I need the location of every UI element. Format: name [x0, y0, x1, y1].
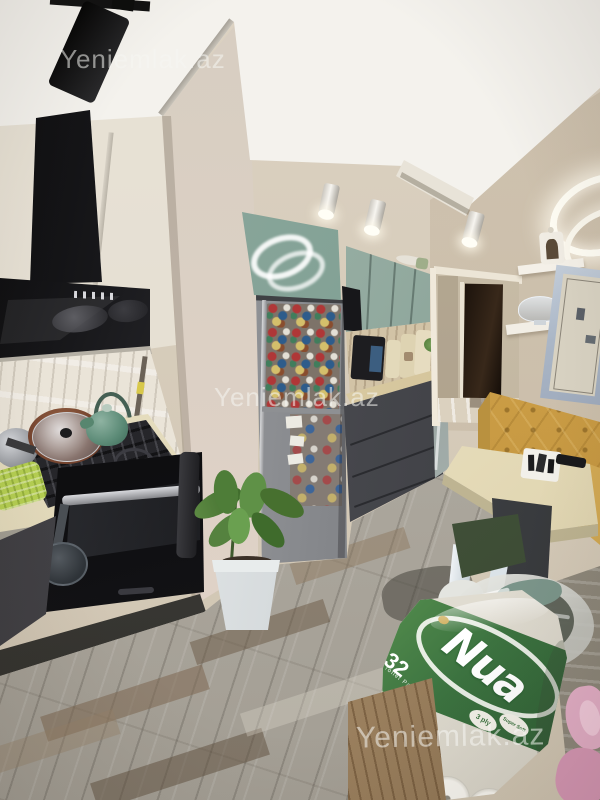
watermark-top: Yeniemlak.az: [60, 44, 226, 75]
kitchen-photo: Nua 32 Toilet Paper 3 ply Super Soft Yen…: [0, 0, 600, 800]
watermark-bottom: Yeniemlak.az: [356, 718, 546, 755]
watermark-middle: Yeniemlak.az: [214, 382, 380, 413]
